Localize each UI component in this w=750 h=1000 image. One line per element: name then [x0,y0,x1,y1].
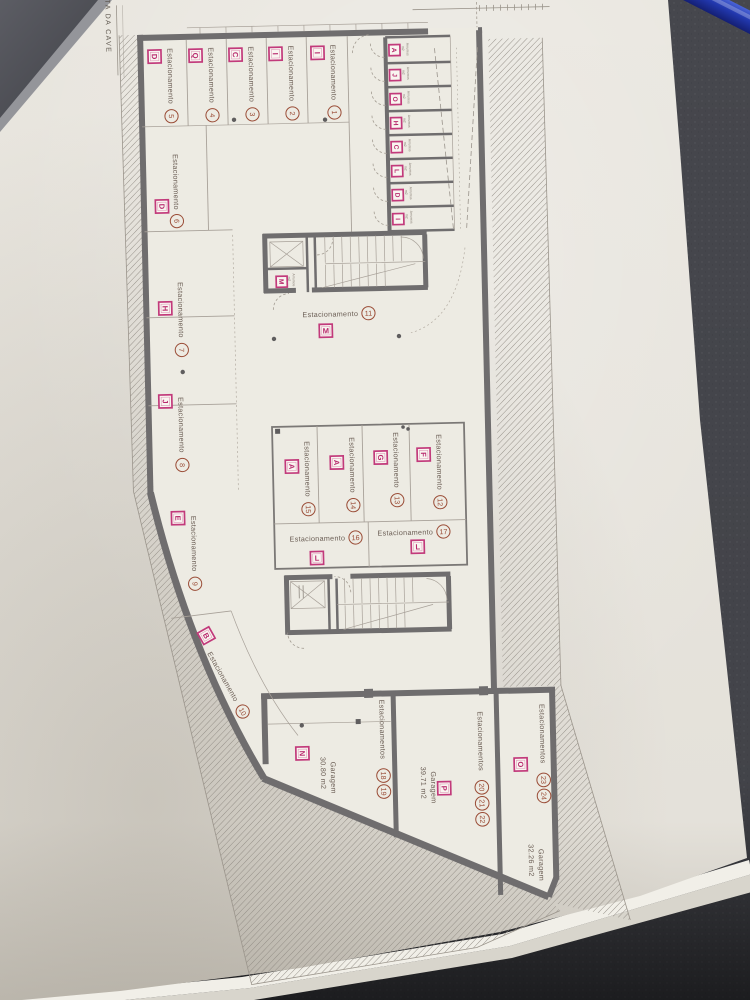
svg-text:20: 20 [477,783,486,791]
svg-text:Estacionamento: Estacionamento [347,437,357,493]
storage-letter-M: M [276,276,287,287]
svg-text:E: E [173,516,182,521]
svg-text:L: L [315,554,320,563]
svg-text:m2: m2 [401,70,405,75]
garage-area-P: Garagem 39.71 m2 [419,766,439,803]
svg-text:Arrumos: Arrumos [406,67,410,80]
svg-text:9: 9 [190,582,199,586]
garage-letter-P: P [438,782,451,795]
svg-text:23: 23 [539,776,548,784]
svg-text:H: H [392,121,399,126]
svg-text:A: A [332,460,341,466]
svg-text:Arrumos: Arrumos [292,273,296,286]
svg-text:J: J [161,399,170,403]
svg-text:12: 12 [436,498,445,506]
svg-text:Estacionamento: Estacionamento [328,44,338,100]
svg-text:Estacionamento: Estacionamento [165,48,175,104]
storage-letter-C: C [391,141,402,152]
svg-text:I: I [271,53,280,55]
svg-text:Estacionamento: Estacionamento [302,309,358,319]
svg-text:Estacionamento: Estacionamento [434,434,444,490]
svg-text:30.80 m2: 30.80 m2 [319,757,329,790]
svg-text:m2: m2 [405,214,409,219]
svg-text:Estacionamento: Estacionamento [246,46,256,102]
svg-text:Estacionamento: Estacionamento [176,397,186,453]
svg-text:Arrumos: Arrumos [406,91,410,104]
svg-text:D: D [150,54,159,60]
garage-letter-N: N [296,747,309,760]
photo-of-floor-plan: PLANTA DA CAVE [0,0,750,1000]
svg-text:m2: m2 [403,142,407,147]
storage-letter-O: O [390,93,401,104]
svg-text:11: 11 [365,309,373,318]
svg-text:L: L [393,169,400,173]
svg-text:24: 24 [539,792,548,800]
svg-text:Estacionamento: Estacionamento [286,45,296,101]
svg-text:Arrumos: Arrumos [408,163,412,176]
svg-text:4: 4 [208,113,217,117]
svg-text:2: 2 [288,111,297,115]
svg-text:Estacionamento: Estacionamento [171,154,181,210]
svg-text:Estacionamento: Estacionamento [377,527,433,537]
svg-text:21: 21 [478,799,487,807]
svg-text:Arrumos: Arrumos [407,139,411,152]
svg-text:m2: m2 [404,166,408,171]
svg-text:Garagem: Garagem [537,849,547,881]
svg-text:C: C [231,52,240,58]
svg-text:Garagem: Garagem [429,771,439,803]
svg-text:Arrumos: Arrumos [409,211,413,224]
svg-text:L: L [415,542,420,551]
svg-text:Estacionamentos: Estacionamentos [537,704,547,764]
svg-text:39.71 m2: 39.71 m2 [419,767,429,800]
svg-text:32.26 m2: 32.26 m2 [527,844,537,877]
svg-text:I: I [394,218,401,220]
storage-letter-J: J [389,69,400,80]
svg-text:A: A [287,464,296,470]
svg-text:I: I [313,52,322,54]
svg-text:Estacionamento: Estacionamento [189,516,199,572]
svg-text:N: N [298,751,307,757]
svg-text:O: O [391,96,398,101]
svg-text:3: 3 [248,112,257,116]
svg-text:C: C [392,145,399,150]
svg-text:15: 15 [304,505,313,513]
svg-text:16: 16 [351,533,359,542]
svg-text:m2: m2 [401,46,405,51]
svg-text:m2: m2 [402,94,406,99]
svg-text:17: 17 [439,527,447,536]
svg-text:19: 19 [379,787,388,795]
storage-letter-A: A [389,44,400,55]
svg-text:O: O [516,761,525,767]
svg-text:A: A [390,48,397,53]
svg-text:7: 7 [177,348,186,352]
storage-letter-I: I [393,213,404,224]
svg-text:D: D [157,204,166,210]
svg-text:Estacionamento: Estacionamento [176,282,186,338]
storage-letter-H: H [391,117,402,128]
svg-text:M: M [323,326,330,335]
svg-text:18: 18 [379,771,388,779]
svg-text:Estacionamentos: Estacionamentos [476,711,486,771]
svg-text:1: 1 [330,110,339,114]
svg-text:Estacionamento: Estacionamento [289,533,345,543]
garage-letter-O: O [514,758,527,771]
storage-letter-D: D [392,189,403,200]
svg-text:Estacionamento: Estacionamento [391,432,401,488]
svg-text:13: 13 [393,496,402,504]
storage-letter-L: L [392,165,403,176]
svg-text:6: 6 [172,219,181,223]
svg-text:22: 22 [478,815,487,823]
svg-text:Estacionamentos: Estacionamentos [377,699,387,759]
svg-text:14: 14 [349,501,358,509]
svg-text:F: F [419,452,428,457]
svg-text:m2: m2 [287,277,291,282]
svg-text:Arrumos: Arrumos [409,187,413,200]
svg-text:m2: m2 [404,190,408,195]
svg-text:D: D [393,193,400,198]
svg-text:P: P [439,786,448,791]
svg-text:H: H [161,306,170,312]
garage-area-O: Garagem 32.26 m2 [527,844,547,881]
svg-text:Arrumos: Arrumos [407,115,411,128]
garage-area-N: Garagem 30.80 m2 [319,757,339,794]
svg-text:Garagem: Garagem [329,762,339,794]
svg-text:G: G [376,454,385,460]
svg-text:Q: Q [191,53,200,59]
svg-text:m2: m2 [402,118,406,123]
svg-text:8: 8 [178,463,187,467]
svg-text:M: M [277,279,284,285]
svg-text:J: J [391,73,398,77]
svg-text:Estacionamento: Estacionamento [302,441,312,497]
svg-text:Estacionamento: Estacionamento [206,47,216,103]
svg-text:Arrumos: Arrumos [405,43,409,56]
svg-text:5: 5 [167,114,176,118]
